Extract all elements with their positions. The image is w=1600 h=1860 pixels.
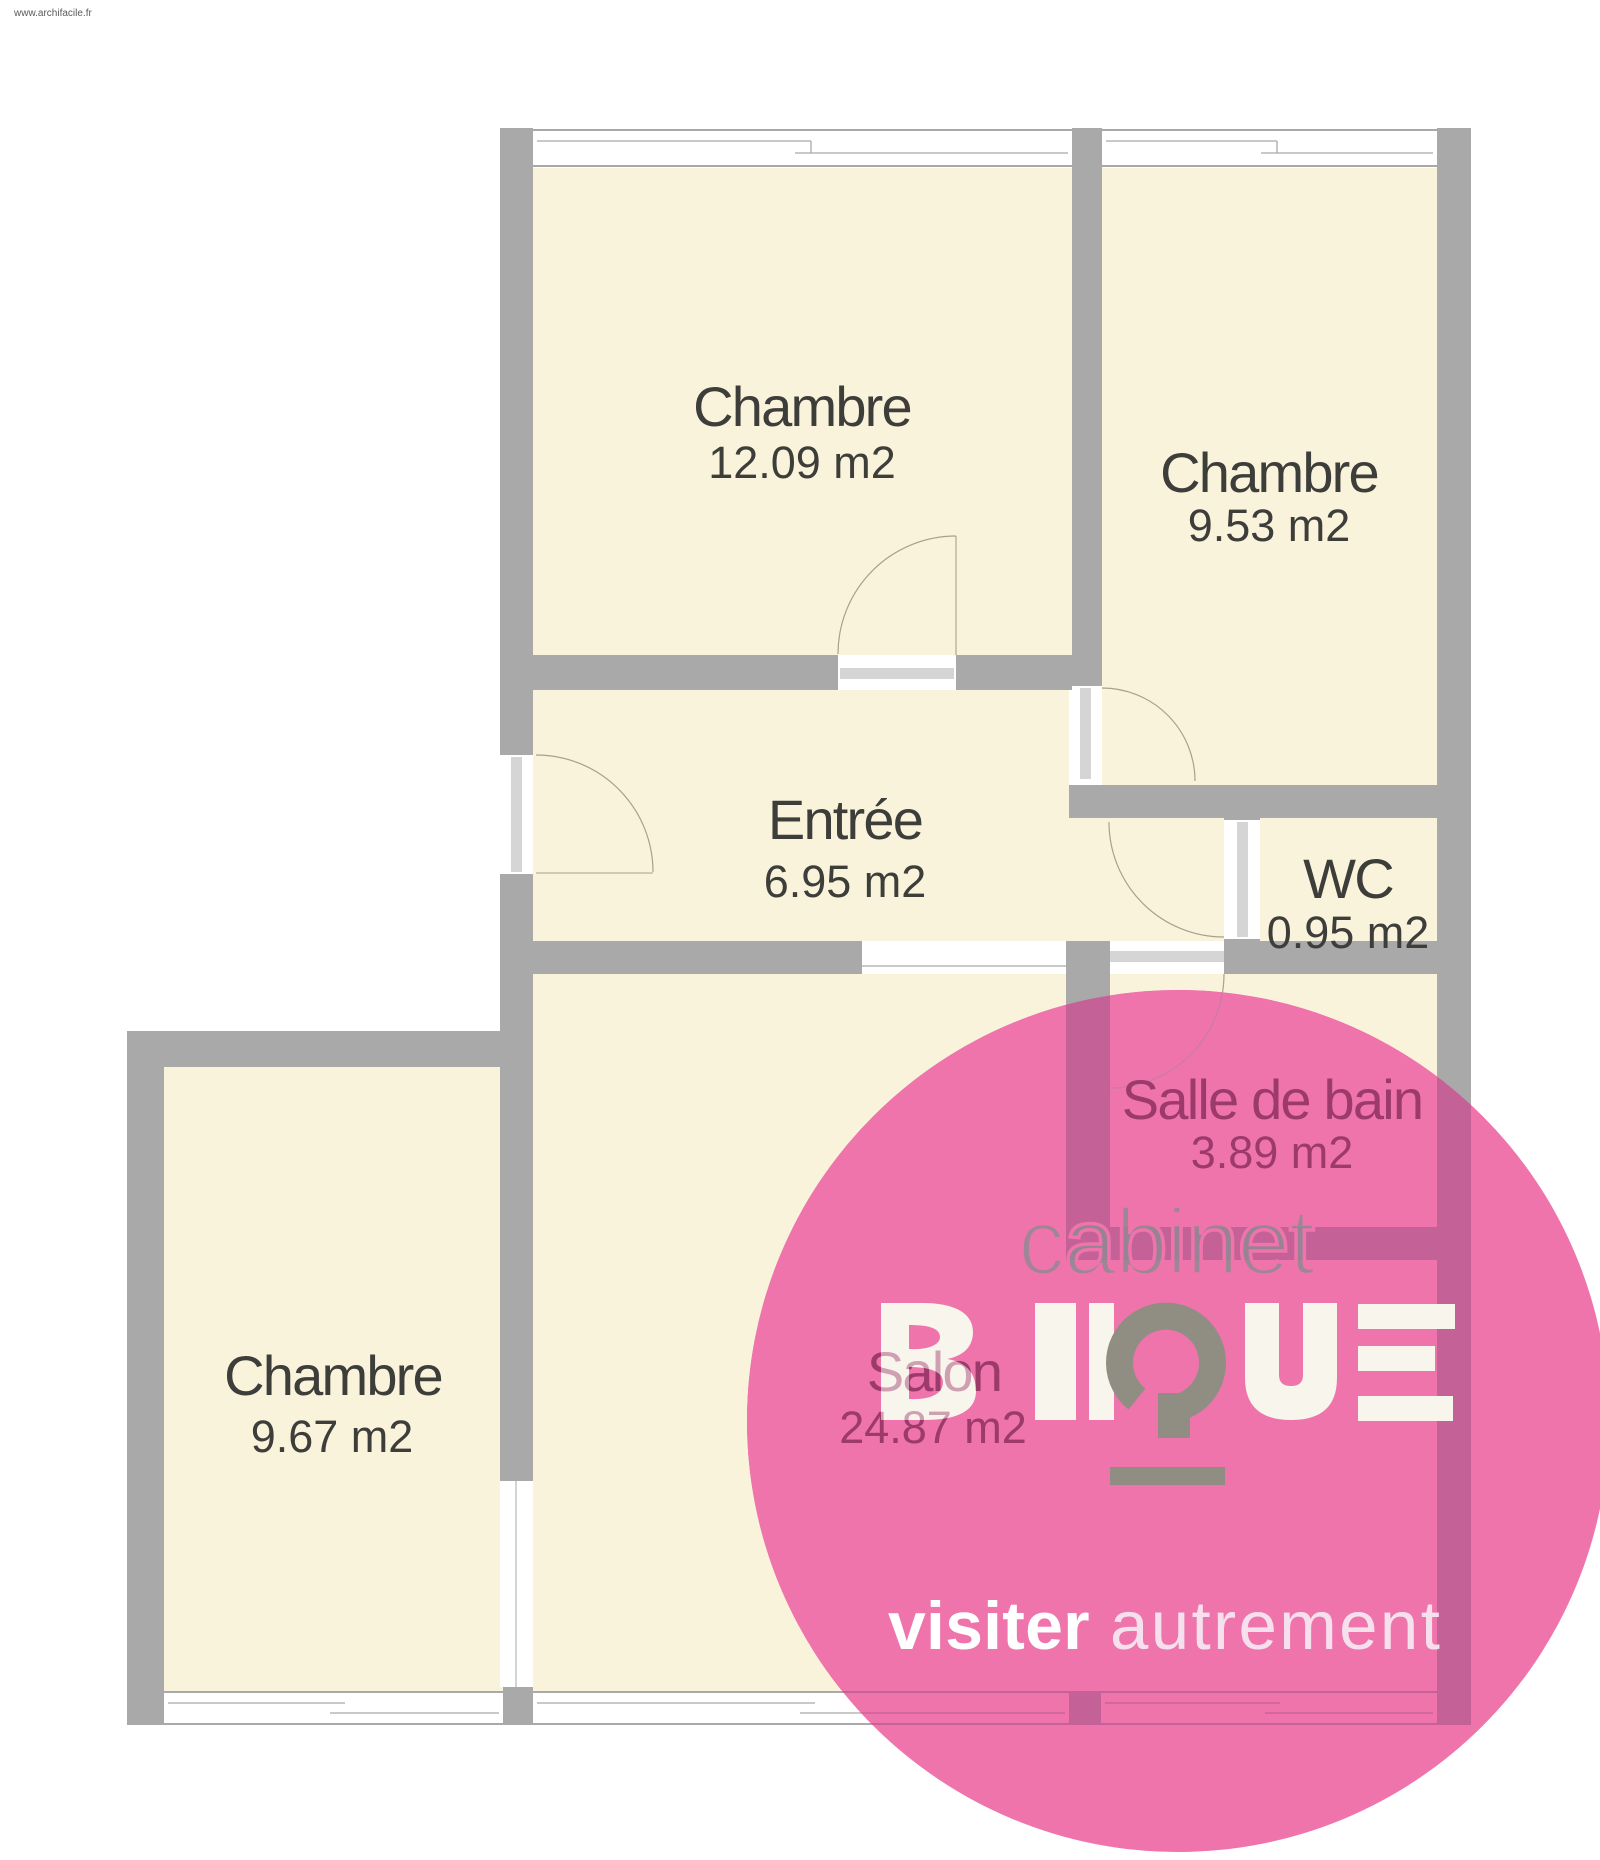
svg-text:0.95 m2: 0.95 m2 [1267, 907, 1430, 958]
svg-text:Salle de bain: Salle de bain [1122, 1068, 1422, 1131]
svg-text:WC: WC [1303, 847, 1393, 910]
svg-text:9.67 m2: 9.67 m2 [251, 1411, 414, 1462]
svg-text:6.95 m2: 6.95 m2 [764, 856, 927, 907]
svg-text:www.archifacile.fr: www.archifacile.fr [13, 8, 92, 19]
svg-text:Chambre: Chambre [224, 1344, 442, 1407]
svg-text:Chambre: Chambre [1160, 441, 1378, 504]
svg-text:12.09 m2: 12.09 m2 [708, 437, 896, 488]
svg-text:Chambre: Chambre [693, 375, 911, 438]
svg-text:autrement: autrement [1110, 1587, 1442, 1664]
svg-text:Entrée: Entrée [768, 788, 922, 851]
svg-text:visiter: visiter [888, 1588, 1090, 1664]
svg-text:24.87 m2: 24.87 m2 [839, 1402, 1027, 1453]
svg-text:9.53 m2: 9.53 m2 [1188, 500, 1351, 551]
svg-text:cabinet: cabinet [1018, 1189, 1315, 1294]
svg-text:Salon: Salon [867, 1340, 1001, 1403]
svg-text:3.89 m2: 3.89 m2 [1191, 1127, 1354, 1178]
